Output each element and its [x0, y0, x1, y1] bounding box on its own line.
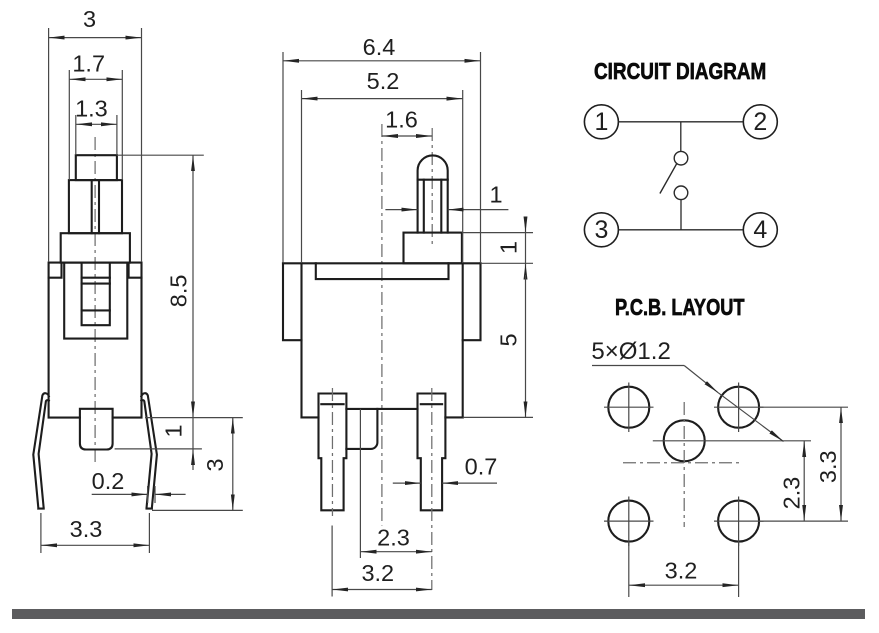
svg-text:5×Ø1.2: 5×Ø1.2	[591, 338, 670, 365]
svg-text:3.2: 3.2	[665, 558, 698, 584]
svg-text:2.3: 2.3	[377, 525, 410, 551]
svg-text:8.5: 8.5	[166, 275, 192, 308]
svg-text:0.2: 0.2	[92, 468, 125, 494]
svg-text:1: 1	[496, 241, 522, 254]
svg-text:P.C.B. LAYOUT: P.C.B. LAYOUT	[615, 295, 745, 321]
svg-text:2: 2	[753, 108, 767, 136]
svg-text:3: 3	[83, 6, 96, 32]
svg-text:0.7: 0.7	[465, 454, 498, 480]
svg-text:4: 4	[753, 216, 767, 244]
svg-text:3.2: 3.2	[361, 560, 394, 586]
svg-text:3: 3	[594, 216, 608, 244]
svg-text:1.7: 1.7	[72, 51, 105, 77]
svg-text:3.3: 3.3	[815, 450, 841, 483]
svg-text:1.6: 1.6	[385, 107, 418, 133]
svg-text:1.3: 1.3	[75, 96, 108, 122]
svg-text:6.4: 6.4	[363, 34, 396, 60]
svg-text:5: 5	[496, 333, 522, 346]
svg-text:3: 3	[202, 458, 228, 471]
svg-text:2.3: 2.3	[778, 477, 804, 510]
svg-text:3.3: 3.3	[70, 516, 103, 542]
svg-text:1: 1	[160, 424, 186, 437]
svg-text:5.2: 5.2	[367, 68, 400, 94]
svg-text:CIRCUIT DIAGRAM: CIRCUIT DIAGRAM	[594, 58, 766, 84]
svg-text:1: 1	[489, 182, 502, 208]
svg-text:1: 1	[594, 108, 608, 136]
